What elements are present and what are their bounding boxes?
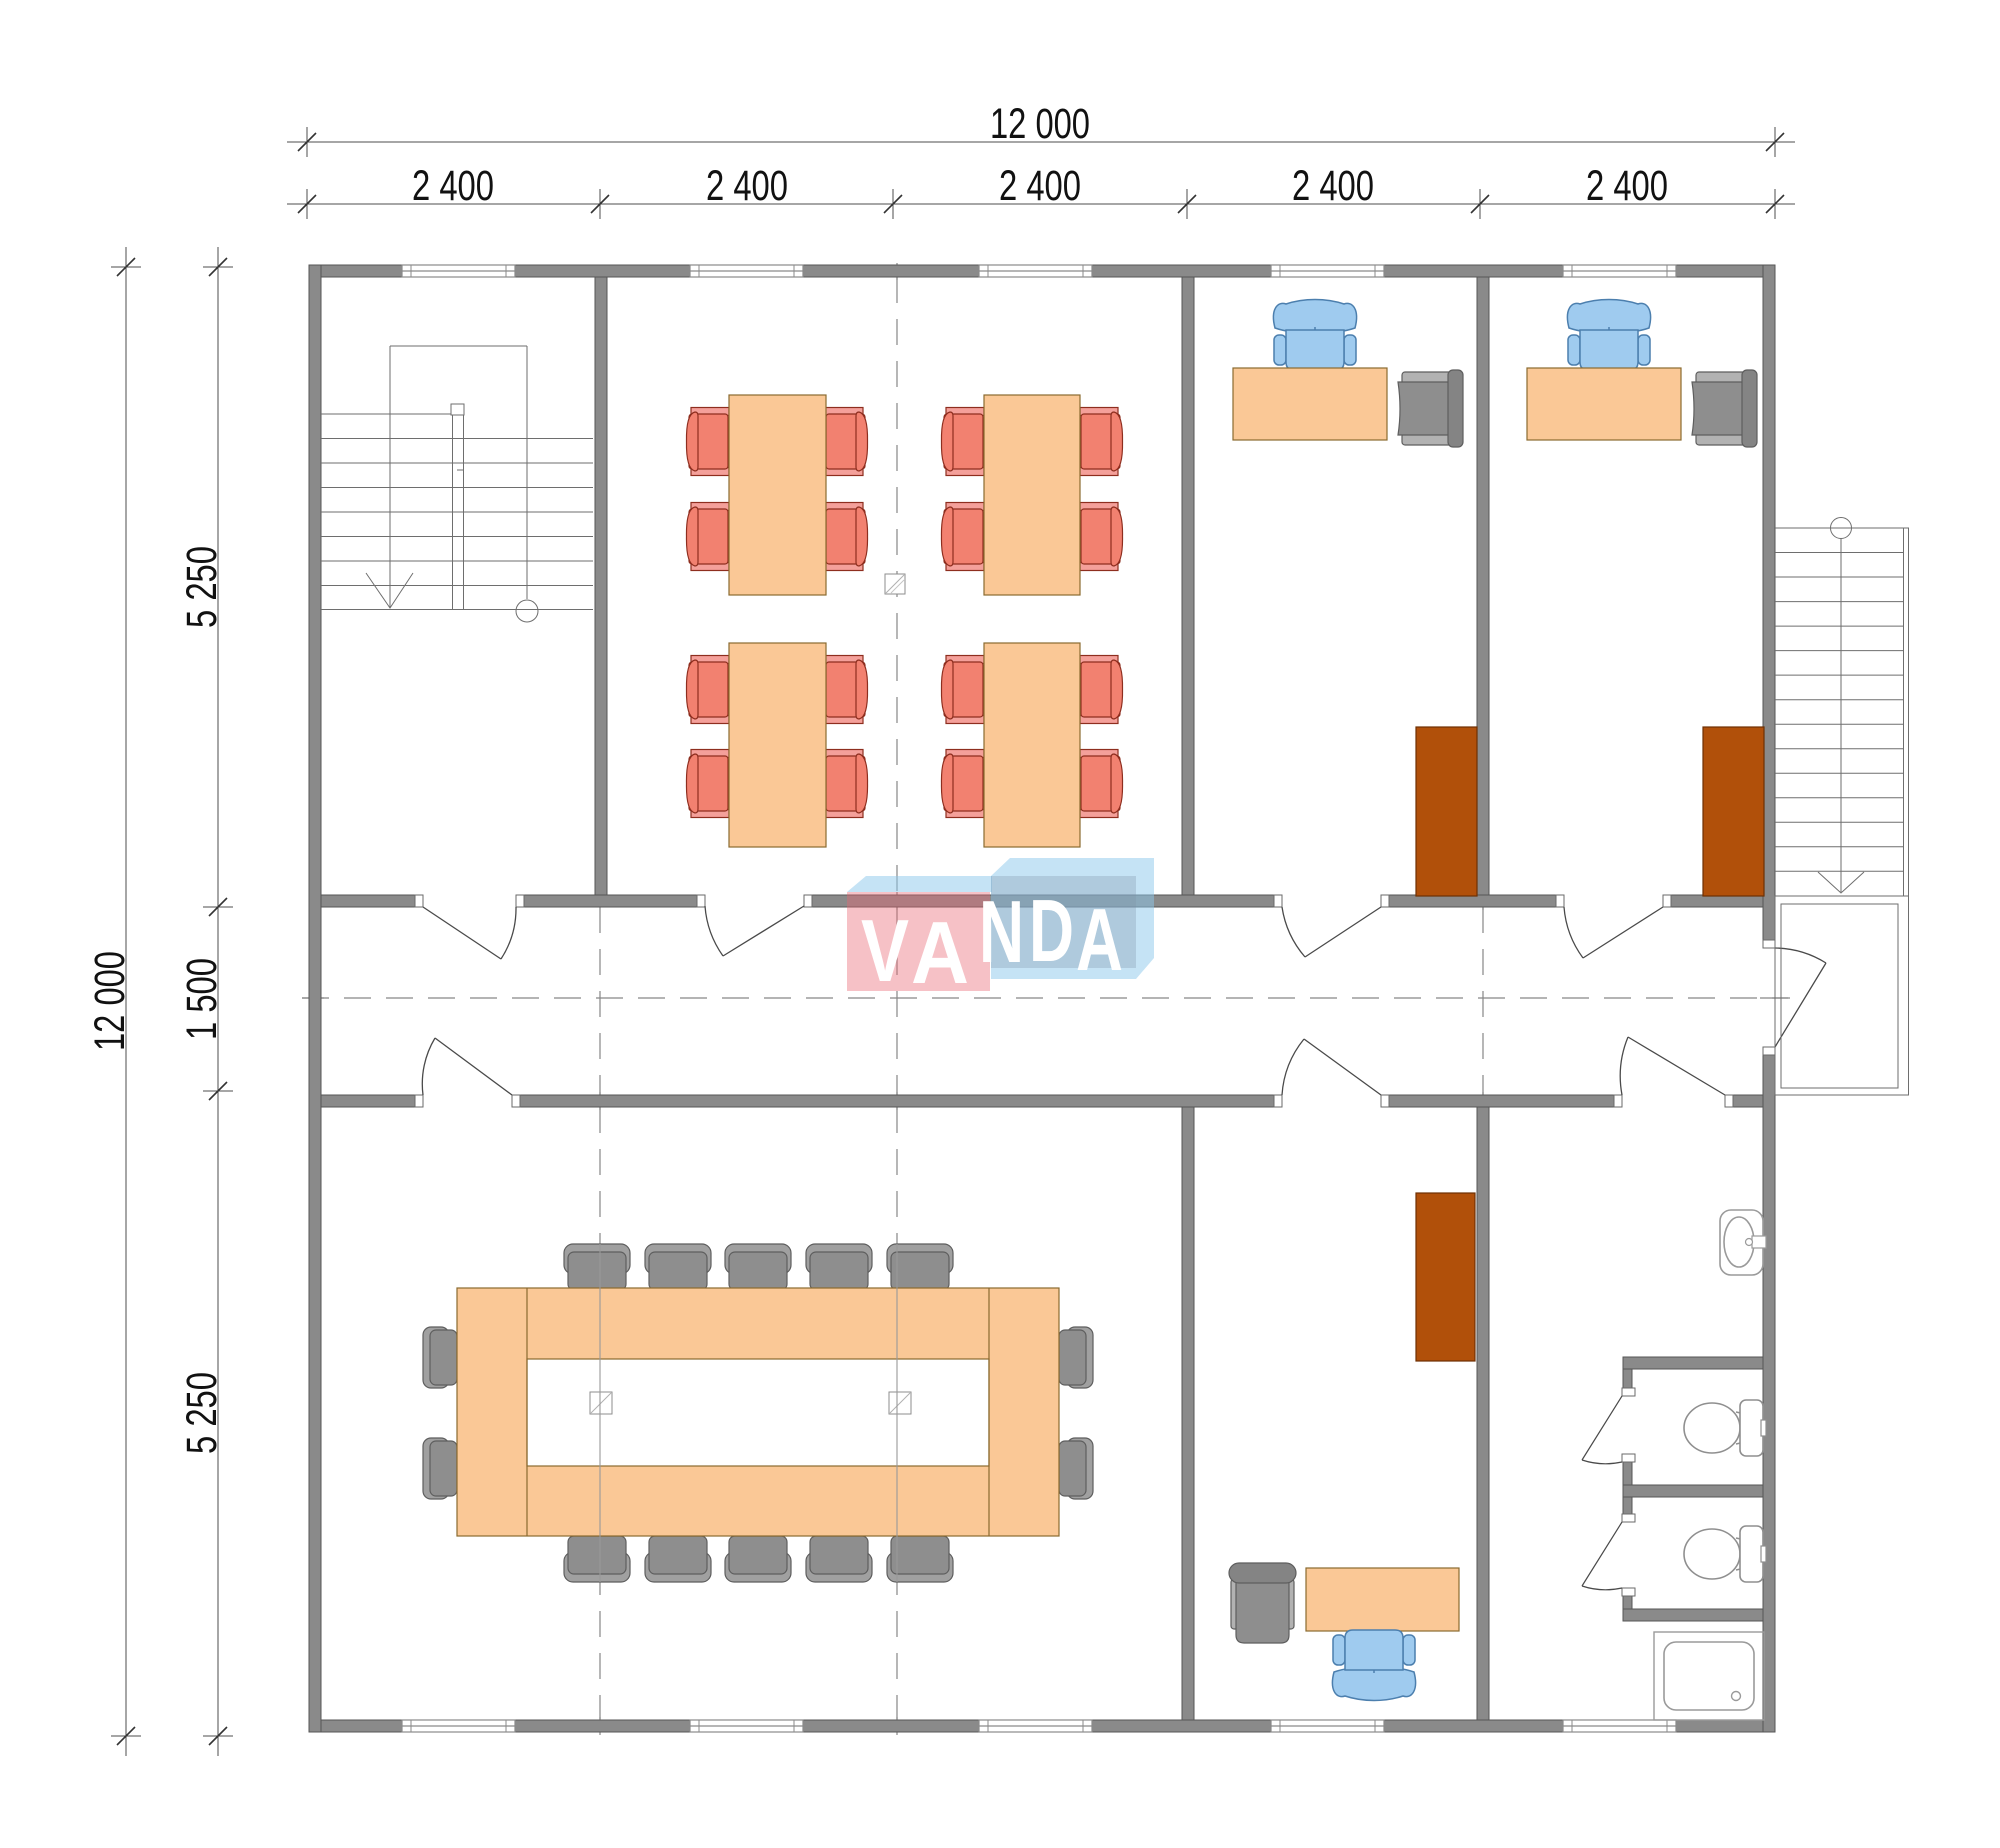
svg-text:12 000: 12 000: [86, 951, 134, 1051]
svg-text:5 250: 5 250: [178, 1372, 226, 1454]
svg-text:N: N: [979, 882, 1024, 981]
svg-text:2 400: 2 400: [1586, 162, 1668, 210]
svg-text:A: A: [1076, 890, 1123, 989]
svg-text:2 400: 2 400: [999, 162, 1081, 210]
svg-text:V: V: [861, 901, 909, 1000]
svg-text:2 400: 2 400: [706, 162, 788, 210]
svg-text:1 500: 1 500: [178, 958, 226, 1040]
svg-text:A: A: [911, 903, 969, 1002]
svg-text:D: D: [1029, 881, 1074, 980]
svg-text:5 250: 5 250: [178, 546, 226, 628]
svg-text:2 400: 2 400: [1292, 162, 1374, 210]
svg-text:2 400: 2 400: [412, 162, 494, 210]
svg-text:12 000: 12 000: [990, 100, 1090, 148]
